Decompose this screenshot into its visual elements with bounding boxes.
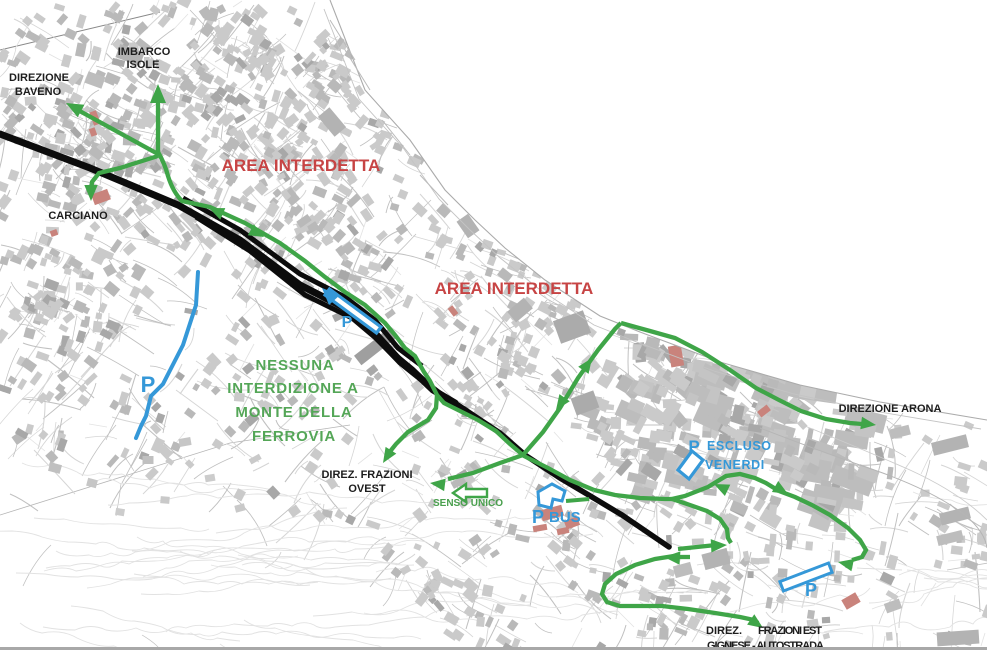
svg-text:P: P [342,314,353,331]
svg-text:BAVENO: BAVENO [15,86,62,98]
svg-text:AREA INTERDETTA: AREA INTERDETTA [222,156,381,175]
svg-text:P: P [141,372,156,397]
svg-text:FERROVIA: FERROVIA [252,428,336,445]
svg-text:DIREZ. FRAZIONI: DIREZ. FRAZIONI [321,469,412,481]
svg-text:P: P [805,580,817,600]
svg-text:BUS: BUS [549,509,581,526]
svg-text:IMBARCO: IMBARCO [118,46,171,58]
svg-text:AREA INTERDETTA: AREA INTERDETTA [435,279,594,298]
svg-text:FRAZIONI EST: FRAZIONI EST [758,625,822,637]
svg-text:OVEST: OVEST [348,483,386,495]
svg-text:CARCIANO: CARCIANO [48,210,108,222]
svg-text:P: P [532,507,544,527]
svg-text:VENERDI: VENERDI [705,458,765,472]
svg-text:ISOLE: ISOLE [126,59,159,71]
svg-text:INTERDIZIONE A: INTERDIZIONE A [227,380,358,397]
svg-text:MONTE DELLA: MONTE DELLA [235,404,352,421]
svg-text:DIREZ.: DIREZ. [706,625,742,637]
svg-text:DIREZIONE ARONA: DIREZIONE ARONA [839,403,942,415]
svg-text:P: P [688,437,699,456]
svg-text:ESCLUSO: ESCLUSO [707,439,772,453]
svg-text:DIREZIONE: DIREZIONE [9,72,69,84]
svg-text:NESSUNA: NESSUNA [256,357,335,374]
svg-text:SENSO UNICO: SENSO UNICO [433,498,503,509]
